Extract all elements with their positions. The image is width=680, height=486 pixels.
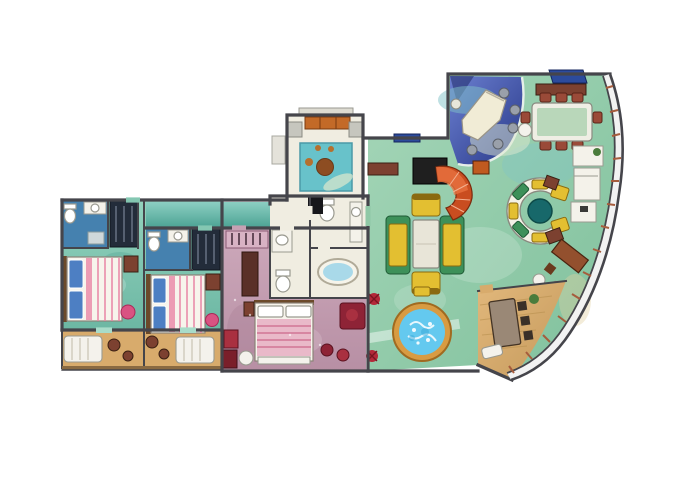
pillow <box>258 306 283 317</box>
piano-stool <box>493 139 503 149</box>
stool-yellow <box>414 287 430 296</box>
guest-bathroom-1 <box>63 201 108 248</box>
hot-tub <box>393 303 451 361</box>
foot-bench <box>258 357 310 364</box>
lounge-chair <box>64 336 102 362</box>
sink-icon <box>276 235 288 245</box>
console <box>368 163 398 175</box>
plant-icon <box>593 148 601 156</box>
pillow <box>153 306 166 331</box>
plant-red-1 <box>368 293 380 305</box>
sofa <box>440 216 464 274</box>
piano-stool <box>451 99 461 109</box>
armchair <box>412 194 440 216</box>
pillow <box>69 291 83 319</box>
deck-chair <box>520 316 530 326</box>
pillow <box>286 306 311 317</box>
nightstand <box>206 274 220 290</box>
serving-table <box>519 124 532 137</box>
guest-bathroom-2 <box>146 229 190 270</box>
piano-stool <box>467 145 477 155</box>
balcony-table <box>159 349 169 359</box>
dining-chair <box>556 141 567 150</box>
sink-icon <box>352 208 361 217</box>
master-bed <box>254 300 314 364</box>
rug-circle <box>328 146 334 152</box>
dining-chair <box>521 112 530 123</box>
ottoman <box>337 349 349 361</box>
bench-maroon <box>340 303 365 329</box>
headboard <box>146 274 151 334</box>
duvet <box>257 319 311 356</box>
ottoman-pink <box>206 314 219 327</box>
shower-mat <box>88 232 104 244</box>
piano-stool <box>499 88 509 98</box>
sink-icon <box>174 232 182 240</box>
pillow <box>69 260 83 288</box>
dining-chair <box>540 141 551 150</box>
ottoman <box>321 344 333 356</box>
toilet-icon <box>276 276 290 292</box>
cushion <box>509 203 518 219</box>
dining-table-top <box>537 108 587 136</box>
toilet-tank <box>276 270 290 276</box>
planter-box <box>272 136 285 164</box>
lounge-chair <box>176 337 214 363</box>
armchair <box>224 330 238 348</box>
piano-stool <box>508 123 518 133</box>
dining-chair <box>572 93 583 102</box>
toilet-icon <box>65 209 76 223</box>
guest-wardrobe-2 <box>192 229 220 270</box>
pouf <box>239 351 253 365</box>
rug-circle <box>317 159 334 176</box>
floor-plan-canvas <box>0 0 680 486</box>
toilet-tank <box>64 204 76 209</box>
nightstand <box>244 302 254 316</box>
guest-bed-2 <box>146 274 205 334</box>
balcony-table <box>123 351 133 361</box>
tub-room <box>318 259 358 285</box>
piano-stool <box>510 105 520 115</box>
rug-circle <box>315 145 321 151</box>
floor-plan-svg <box>0 0 680 486</box>
cabinet <box>305 117 350 129</box>
toilet-icon <box>149 237 160 251</box>
side-bench <box>288 122 302 137</box>
dining-chair <box>556 93 567 102</box>
side-bench <box>349 122 363 137</box>
dining-chair <box>540 93 551 102</box>
dining-chair <box>593 112 602 123</box>
bar-cabinet <box>574 168 600 200</box>
deck-table <box>489 298 521 347</box>
sink-icon <box>91 204 99 212</box>
closet-rail <box>226 231 268 248</box>
deck-chair <box>523 330 533 340</box>
toilet-tank <box>148 232 160 237</box>
plant-icon <box>529 294 539 304</box>
wardrobe <box>242 252 258 296</box>
guest-bed-1 <box>62 256 122 322</box>
round-table <box>528 199 552 223</box>
ottoman-pink <box>121 305 135 319</box>
balcony-table <box>146 336 158 348</box>
cabinet <box>223 350 237 368</box>
deck-chair <box>517 301 527 311</box>
glass-door <box>549 70 587 83</box>
bathtub-water <box>323 263 353 281</box>
nightstand <box>124 256 138 272</box>
balcony-table <box>108 339 120 351</box>
sofa <box>386 216 410 274</box>
guest-wardrobe-1 <box>110 201 138 247</box>
console-orange <box>473 161 489 174</box>
pillow <box>153 278 166 303</box>
rug-circle <box>305 158 313 166</box>
